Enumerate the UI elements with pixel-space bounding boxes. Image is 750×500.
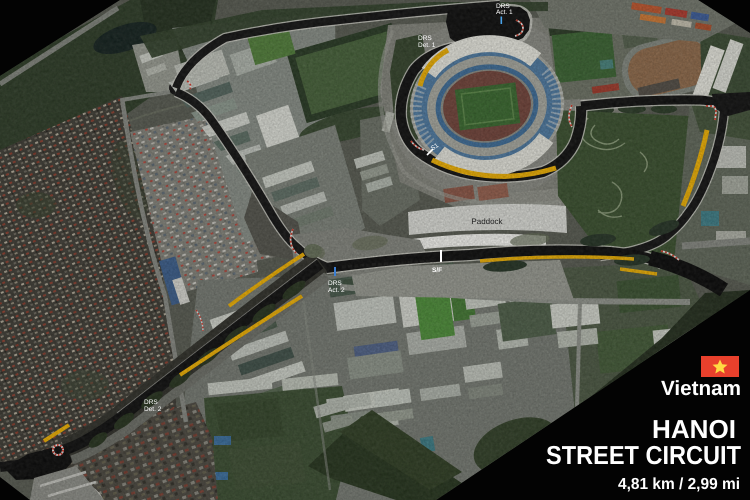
svg-text:S/F: S/F [432,267,442,274]
svg-text:DRS: DRS [144,399,158,406]
svg-text:Act. 1: Act. 1 [496,9,513,16]
svg-text:DRS: DRS [328,280,342,287]
svg-text:Det. 1: Det. 1 [418,42,436,49]
svg-text:STREET CIRCUIT: STREET CIRCUIT [546,440,741,470]
svg-text:Vietnam: Vietnam [661,377,741,400]
svg-text:Det. 2: Det. 2 [144,406,162,413]
svg-text:DRS: DRS [418,35,432,42]
svg-text:Act. 2: Act. 2 [328,287,345,294]
svg-text:4,81 km / 2,99 mi: 4,81 km / 2,99 mi [618,476,740,493]
svg-text:Paddock: Paddock [471,217,503,226]
